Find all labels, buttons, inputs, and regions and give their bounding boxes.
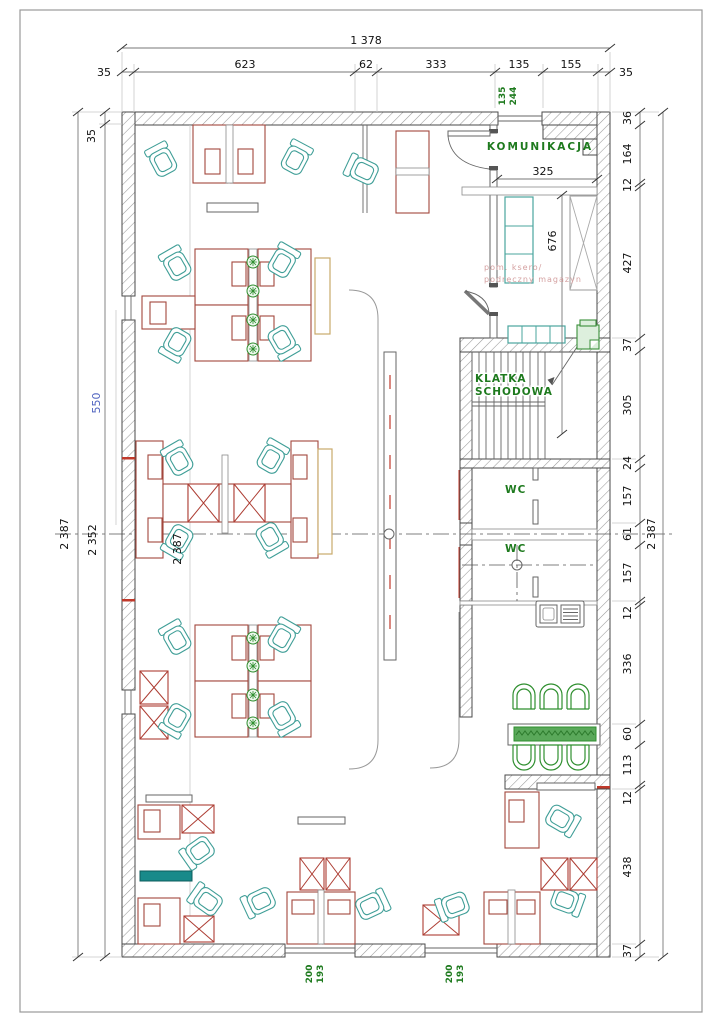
- desk-cluster-c: [136, 437, 332, 561]
- storage-cabinet: [188, 484, 219, 522]
- office-chair: [353, 887, 391, 922]
- stair-arrow-head: [548, 377, 555, 385]
- plant: [247, 660, 259, 672]
- dim-komunikacja-width: 325: [533, 165, 554, 178]
- storage-cabinet: [182, 805, 214, 833]
- dim-window2-a: 200: [445, 965, 455, 984]
- desk-cluster-top: [144, 125, 429, 213]
- plant: [247, 717, 259, 729]
- dim-segment: 62: [359, 58, 373, 71]
- dim-blue-width: 550: [90, 393, 103, 414]
- office-chair: [160, 439, 196, 478]
- dim-segment: 37: [621, 944, 634, 958]
- storage-cabinet: [326, 858, 350, 890]
- dim-window1-a: 200: [305, 965, 315, 984]
- room-label-wc-upper: WC: [505, 484, 526, 496]
- dim-left-inner: 2 352: [86, 524, 99, 556]
- storage-room-furniture: [505, 196, 599, 349]
- dim-segment: 135: [509, 58, 530, 71]
- dim-door-a: 135: [498, 87, 508, 106]
- office-chair: [158, 618, 194, 657]
- dimension-right: 36 164 12 427 37 305 24 157 61 157 12 33…: [612, 108, 668, 961]
- break-chair: [567, 745, 589, 770]
- dimension-left: 2 387 2 352 35: [58, 108, 122, 961]
- office-chair: [178, 834, 217, 871]
- dim-segment: 305: [621, 395, 634, 416]
- copier: [577, 320, 599, 349]
- floor-plan-page: 1 378 35 623 62 333 135 155 35 36 164 12…: [0, 0, 724, 1024]
- storage-cabinet: [234, 484, 265, 522]
- dim-segment: 113: [621, 755, 634, 776]
- dim-segment: 35: [619, 66, 633, 79]
- corridor-partition: [384, 352, 396, 660]
- dim-segment: 61: [621, 527, 634, 541]
- dim-segment: 623: [235, 58, 256, 71]
- dim-segment: 157: [621, 563, 634, 584]
- dim-segment: 336: [621, 654, 634, 675]
- break-chair: [513, 684, 535, 709]
- dimension-top: 1 378 35 623 62 333 135 155 35: [97, 34, 633, 112]
- dim-left-outer: 2 387: [58, 518, 71, 550]
- dim-window2-b: 193: [456, 965, 466, 984]
- room-label-stairwell-2: SCHODOWA: [475, 386, 553, 398]
- storage-cabinet: [541, 858, 568, 890]
- storage-cabinet: [300, 858, 324, 890]
- office-chair: [158, 244, 194, 283]
- office-chair: [239, 885, 277, 920]
- dim-segment: 12: [621, 791, 634, 805]
- dim-storage-depth: 676: [546, 231, 559, 252]
- dim-total-width: 1 378: [350, 34, 382, 47]
- plant: [247, 343, 259, 355]
- desk-cluster-right-column: [505, 783, 597, 890]
- room-label-wc-lower: WC: [505, 543, 526, 555]
- break-chair: [567, 684, 589, 709]
- office-chair: [254, 437, 290, 476]
- desk-cluster-bottom-right: [423, 885, 586, 944]
- dim-segment: 427: [621, 253, 634, 274]
- dim-segment: 24: [621, 456, 634, 470]
- plant: [247, 689, 259, 701]
- floor-plan-drawing: 1 378 35 623 62 333 135 155 35 36 164 12…: [0, 0, 724, 1024]
- plant: [247, 632, 259, 644]
- door-storage: [465, 283, 498, 316]
- staircase: [472, 347, 577, 459]
- office-chair: [158, 325, 194, 364]
- dim-segment: 35: [97, 66, 111, 79]
- dim-segment: 12: [621, 178, 634, 192]
- storage-note-1: pom. ksero/: [484, 263, 542, 272]
- plant: [247, 256, 259, 268]
- office-chair: [342, 152, 380, 187]
- office-chair: [144, 140, 180, 179]
- dim-segment: 157: [621, 486, 634, 507]
- dim-segment: 333: [426, 58, 447, 71]
- room-label-komunikacja: KOMUNIKACJA: [487, 141, 593, 153]
- corridor-zone-lines: [349, 290, 459, 769]
- storage-cabinet: [570, 858, 597, 890]
- dim-segment: 155: [561, 58, 582, 71]
- plant: [247, 285, 259, 297]
- office-chair: [186, 881, 225, 918]
- office-chair: [253, 520, 289, 559]
- kitchenette-unit: [536, 601, 584, 627]
- plant: [247, 314, 259, 326]
- dim-door-b: 244: [509, 87, 519, 106]
- storage-cabinet: [140, 671, 168, 704]
- desk-cluster-b: [142, 241, 330, 364]
- dim-segment: 36: [621, 111, 634, 125]
- dim-segment: 12: [621, 606, 634, 620]
- desk-cluster-d: [140, 616, 311, 740]
- dim-segment: 60: [621, 727, 634, 741]
- storage-cabinet: [184, 916, 214, 942]
- dim-segment: 438: [621, 857, 634, 878]
- break-chair: [540, 745, 562, 770]
- break-chair: [513, 745, 535, 770]
- dim-window1-b: 193: [316, 965, 326, 984]
- break-chair: [540, 684, 562, 709]
- desk-cluster-bottom-center: [239, 817, 391, 944]
- office-chair: [278, 138, 314, 177]
- dim-total-height: 2 387: [645, 518, 658, 550]
- room-label-stairwell-1: KLATKA: [475, 373, 527, 385]
- office-chair: [543, 802, 582, 838]
- storage-note-2: podręczny magazyn: [484, 275, 582, 284]
- dim-segment: 164: [621, 144, 634, 165]
- dim-inner-height: 2 387: [171, 533, 184, 565]
- desk-cluster-bottom-left: [138, 795, 225, 944]
- break-area: [508, 684, 600, 770]
- dim-segment: 37: [621, 338, 634, 352]
- dim-wall-thickness: 35: [85, 129, 98, 143]
